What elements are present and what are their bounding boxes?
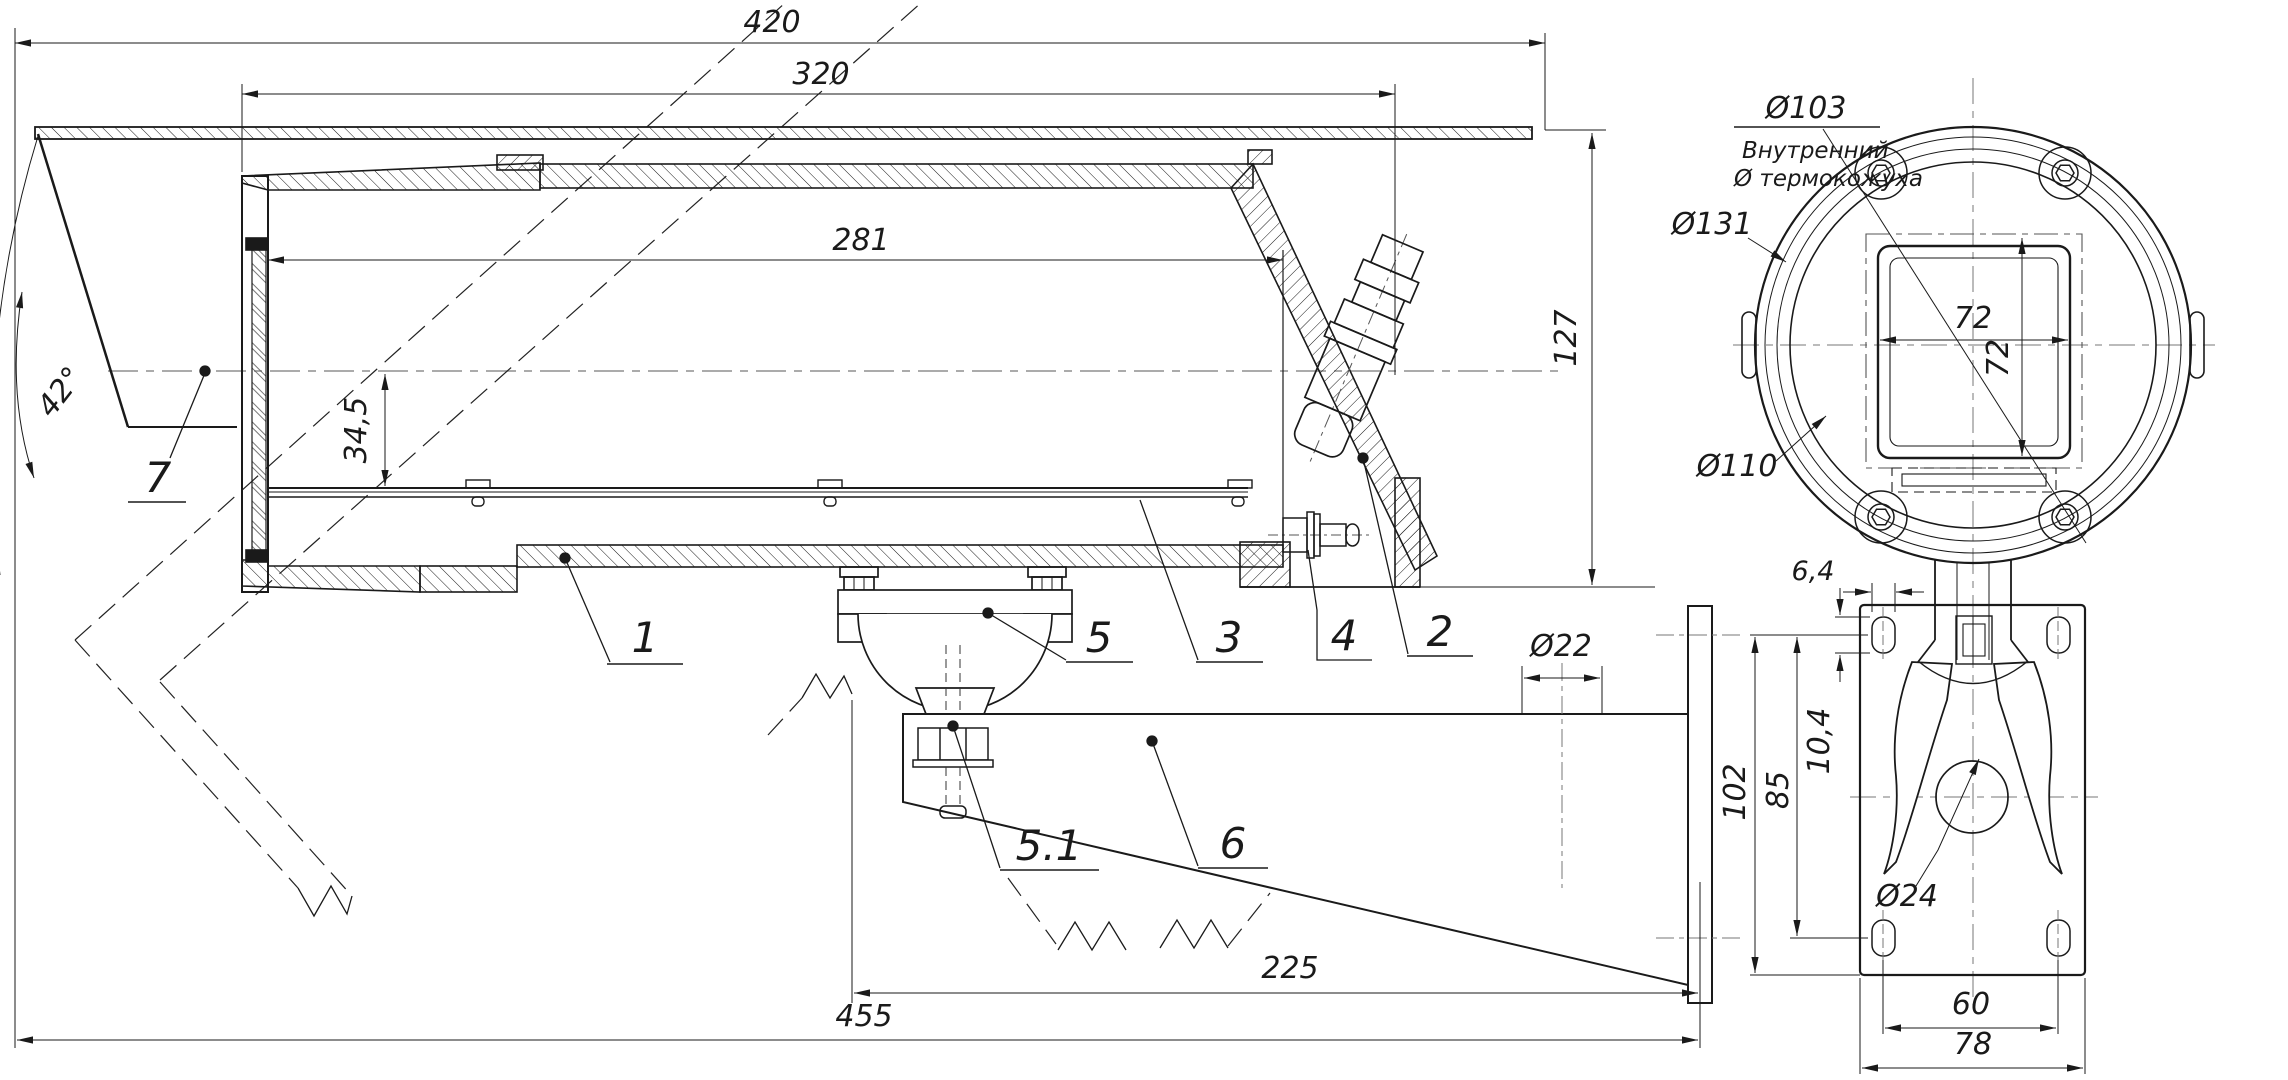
front-glass: [252, 246, 266, 556]
dim-42deg: 42°: [30, 360, 90, 423]
label-ball-mount: 5: [1086, 613, 1113, 662]
dim-320: 320: [792, 57, 849, 92]
dim-o103-note1: Внутренний: [1742, 138, 1889, 164]
dim-72w: 72: [1954, 301, 1992, 336]
dim-o22: Ø22: [1528, 629, 1592, 664]
dim-127: 127: [1549, 309, 1584, 366]
dim-o24: Ø24: [1874, 879, 1938, 914]
fork-right: [1994, 662, 2062, 874]
label-vent-bolt: 4: [1331, 611, 1358, 660]
ball-clamp: [916, 688, 994, 714]
label-camera-tray: 3: [1216, 613, 1243, 662]
mount-nut-right: [1028, 567, 1066, 590]
dim-o103-note2: Ø термокожуха: [1733, 166, 1923, 192]
label-ball-mount-bolt: 5.1: [1016, 821, 1083, 870]
dim-85: 85: [1761, 771, 1796, 809]
dim-455: 455: [835, 999, 892, 1034]
engineering-drawing: 420 320 281 127 42° 34,5 Ø22 225 455 Ø10…: [0, 0, 2288, 1080]
dim-10-4: 10,4: [1802, 708, 1837, 775]
dim-78: 78: [1954, 1027, 1992, 1062]
dim-102: 102: [1718, 763, 1753, 820]
label-front-window: 7: [145, 453, 172, 502]
dim-o131: Ø131: [1670, 207, 1753, 242]
front-window: [1866, 234, 2082, 492]
dim-6-4: 6,4: [1792, 556, 1835, 587]
drawing-sheet: 420 320 281 127 42° 34,5 Ø22 225 455 Ø10…: [0, 0, 2288, 1080]
label-bracket-arm: 6: [1220, 819, 1247, 868]
dim-34-5: 34,5: [339, 397, 374, 464]
dim-225: 225: [1261, 951, 1318, 986]
side-view: [0, 2, 1745, 1048]
camera-tray: [268, 480, 1252, 506]
swing-arc: [0, 136, 38, 575]
front-dimensions: [1734, 127, 2085, 1074]
dim-o103: Ø103: [1764, 91, 1847, 126]
dim-60: 60: [1952, 987, 1990, 1022]
dim-42-arc: [16, 292, 34, 478]
mount-nut-left: [840, 567, 878, 590]
dim-72h: 72: [1981, 339, 2016, 377]
label-cable-gland: 2: [1427, 607, 1454, 656]
ball-joint-mount: [838, 567, 1072, 726]
vent-bolt: [1268, 512, 1372, 558]
label-housing: 1: [632, 613, 659, 662]
dim-o110: Ø110: [1695, 449, 1778, 484]
dim-281: 281: [832, 223, 889, 258]
sun-shield: [0, 127, 1532, 575]
dim-420: 420: [743, 5, 800, 40]
